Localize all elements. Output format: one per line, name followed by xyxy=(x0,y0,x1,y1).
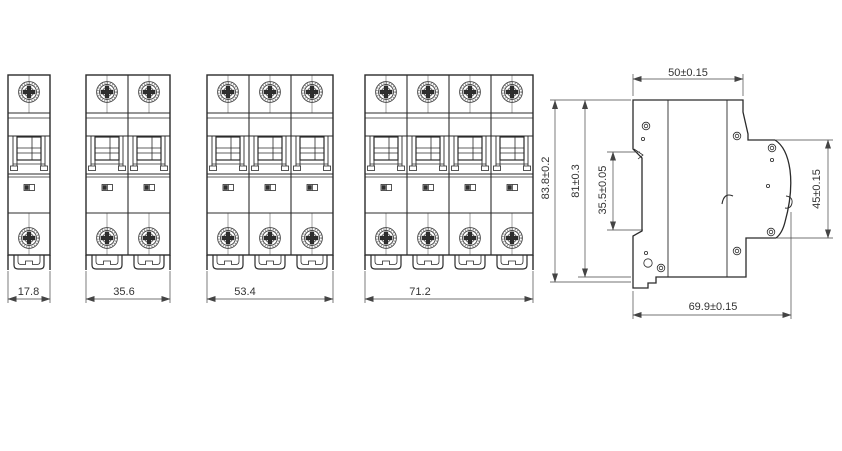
side-view xyxy=(633,100,792,288)
dimension-label-top-depth: 50±0.15 xyxy=(668,67,708,79)
dimension-label-3pole-width: 53.4 xyxy=(234,286,255,298)
dimension-label-front-face: 45±0.15 xyxy=(811,169,823,209)
toggle-lever-arc xyxy=(722,195,733,204)
dimension-label-body-height: 81±0.3 xyxy=(570,164,582,198)
side-view-outline xyxy=(633,100,791,288)
dimension-width-4pole xyxy=(365,271,533,303)
dimension-label-2pole-width: 35.6 xyxy=(113,286,134,298)
mcb-dimension-drawing: 17.8 35.6 53.4 xyxy=(0,0,842,451)
front-view-4pole xyxy=(365,75,533,270)
dimension-label-4pole-width: 71.2 xyxy=(409,286,430,298)
dimension-width-3pole xyxy=(207,271,333,303)
dimension-label-din-slot: 35.5±0.05 xyxy=(597,166,609,215)
rivets xyxy=(641,122,775,272)
front-view-3pole xyxy=(207,75,333,270)
dimension-label-overall-depth: 69.9±0.15 xyxy=(689,301,738,313)
technical-drawing-canvas: 17.8 35.6 53.4 xyxy=(0,0,842,451)
dimension-label-1pole-width: 17.8 xyxy=(18,286,39,298)
front-view-1pole xyxy=(8,75,50,270)
front-view-2pole xyxy=(86,75,170,270)
dimension-label-overall-height: 83.8±0.2 xyxy=(540,157,552,200)
